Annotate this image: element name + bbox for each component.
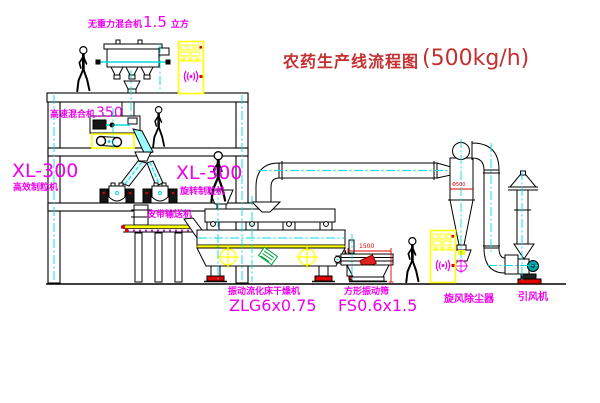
label-granulator-left-name: 高效制粒机 (13, 184, 58, 193)
label-fan: 引风机 (518, 293, 548, 303)
gravity-mixer-name: 无重力混合机 (88, 21, 142, 30)
label-granulator-right-model: XL-300 (176, 164, 242, 183)
gravity-mixer-machine (96, 40, 170, 93)
drawing-title: 农药生产线流程图 (500kg/h) (283, 48, 529, 70)
fluid-bed-dryer (197, 209, 364, 282)
cad-flow-diagram: 无重力混合机 1.5 立方 高速混合机 350 XL-300 高效制粒机 XL-… (0, 0, 600, 403)
label-granulator-left-model: XL-300 (12, 162, 78, 181)
label-screen-model: FS0.6x1.5 (338, 298, 417, 314)
gravity-mixer-unit: 立方 (171, 21, 189, 30)
fan-and-stack (483, 170, 541, 284)
y-splitter-chutes (121, 152, 163, 186)
worker-ground (406, 238, 418, 283)
worker-second-floor (153, 107, 164, 147)
granulator-right-unit (143, 183, 177, 203)
title-capacity: (500kg/h) (422, 48, 529, 70)
exhaust-pipe (252, 161, 451, 212)
worker-top-floor (77, 47, 89, 92)
control-cabinet-top (179, 42, 204, 94)
dimension-screen-length: 1500 (359, 244, 374, 250)
label-dryer-model: ZLG6x0.75 (229, 298, 317, 314)
label-granulator-right-name: 旋转制粒机 (180, 188, 225, 197)
label-cyclone: 旋风除尘器 (444, 295, 494, 305)
high-speed-mixer-name: 高速混合机 (50, 111, 95, 120)
belt-conveyor (121, 225, 197, 282)
label-gravity-mixer: 无重力混合机 1.5 立方 (88, 15, 189, 30)
gravity-mixer-capacity: 1.5 (143, 15, 167, 30)
label-high-speed-mixer: 高速混合机 350 (50, 106, 123, 120)
high-speed-mixer-model: 350 (96, 106, 123, 120)
dimension-cyclone: Φ500 (452, 183, 465, 188)
title-text: 农药生产线流程图 (283, 54, 419, 70)
label-belt-conveyor: 皮带输送机 (147, 211, 192, 220)
control-cabinet-ground (431, 231, 456, 283)
